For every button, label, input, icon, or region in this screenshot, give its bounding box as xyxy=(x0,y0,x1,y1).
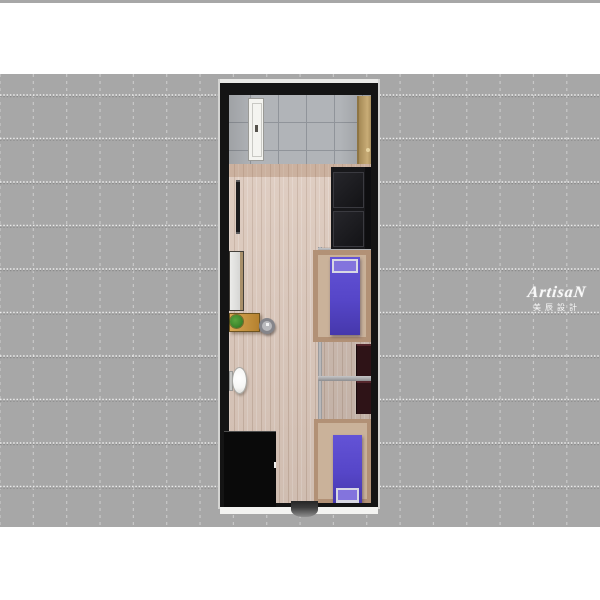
entry-door-tan xyxy=(357,96,371,164)
sofa-backrest xyxy=(365,167,371,249)
sofa xyxy=(331,167,371,249)
stool-highlight xyxy=(266,323,269,326)
bed-1-pillow xyxy=(332,259,358,273)
watermark-brand: ArtisaN xyxy=(514,284,600,302)
wall-frame xyxy=(220,83,378,507)
door-knob xyxy=(366,148,370,152)
nightstand-2 xyxy=(356,381,371,414)
entry-mat xyxy=(291,501,318,517)
sofa-cushion xyxy=(333,172,364,208)
plant xyxy=(230,315,243,328)
toilet-bowl xyxy=(232,367,247,394)
background-top-sliver xyxy=(0,0,600,3)
entry-door-white xyxy=(248,98,264,161)
wardrobe-side xyxy=(240,252,243,310)
tv xyxy=(236,180,240,234)
black-mat xyxy=(224,431,276,511)
watermark-subtitle: 美辰設計 xyxy=(515,302,599,313)
stool xyxy=(259,318,275,334)
mat-notch xyxy=(274,462,276,468)
bed-2-pillow xyxy=(336,488,359,503)
floor-plan xyxy=(220,79,378,515)
sofa-cushion xyxy=(333,211,364,247)
watermark: ArtisaN 美辰設計 xyxy=(515,284,599,313)
plan-outline-right xyxy=(378,79,380,509)
wardrobe xyxy=(229,251,244,311)
toilet xyxy=(229,366,248,396)
door-handle xyxy=(255,125,258,132)
nightstand-1 xyxy=(356,344,371,376)
